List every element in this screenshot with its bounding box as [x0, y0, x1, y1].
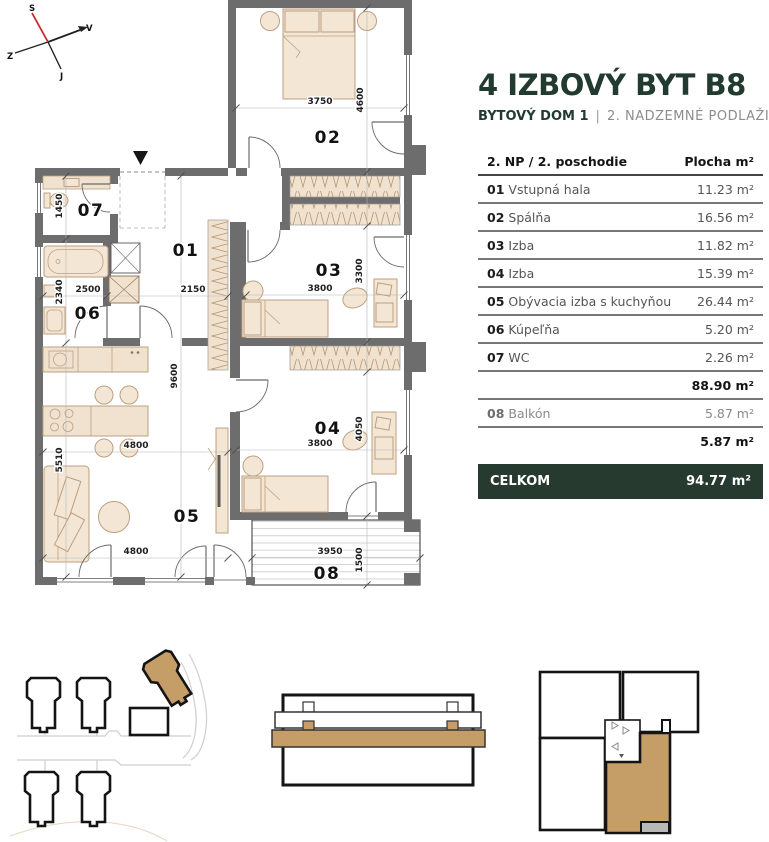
site-buildings	[25, 649, 198, 826]
compass-label-south: J	[59, 72, 63, 82]
table-header-right: Plocha m²	[684, 154, 754, 169]
room-label-03: 03	[316, 261, 343, 281]
area-table: 2. NP / 2. poschodie Plocha m² 01 Vstupn…	[478, 148, 763, 499]
table-row: 05 Obývacia izba s kuchyňou 26.44 m²	[478, 288, 763, 316]
room-area: 2.26 m²	[705, 350, 754, 365]
total-value: 94.77 m²	[686, 474, 751, 489]
room-area: 16.56 m²	[697, 210, 754, 225]
room-name: Spálňa	[508, 210, 551, 225]
room-number: 02	[487, 210, 504, 225]
dim-label-2500: 2500	[75, 285, 100, 295]
floor-plan-sheet: S V Z J	[0, 0, 769, 842]
dim-label-3300: 3300	[355, 258, 365, 283]
dim-label-4050: 4050	[355, 416, 365, 441]
room-name: Izba	[508, 266, 534, 281]
table-row: 03 Izba 11.82 m²	[478, 232, 763, 260]
room-number: 06	[487, 322, 504, 337]
total-label: CELKOM	[490, 474, 550, 489]
dim-label-1450: 1450	[55, 193, 65, 218]
table-header-left: 2. NP / 2. poschodie	[487, 154, 627, 169]
floor-key-plan	[533, 650, 708, 840]
room-number: 05	[487, 294, 504, 309]
room-name: Kúpeľňa	[508, 322, 559, 337]
room-area: 11.82 m²	[697, 238, 754, 253]
room-number: 04	[487, 266, 504, 281]
room-label-08: 08	[314, 564, 341, 584]
room-area: 5.20 m²	[705, 322, 754, 337]
room-02-bedroom-furniture	[261, 9, 377, 99]
subtitle: BYTOVÝ DOM 1 | 2. NADZEMNÉ PODLAŽIE	[478, 109, 763, 124]
dim-label-4600: 4600	[356, 87, 366, 112]
site-plan	[5, 640, 235, 842]
subtitle-separator: |	[596, 109, 600, 124]
dim-label-4800b: 4800	[123, 547, 148, 557]
table-row: 06 Kúpeľňa 5.20 m²	[478, 316, 763, 344]
compass-label-north: S	[29, 4, 35, 14]
dim-label-1500: 1500	[355, 547, 365, 572]
dim-label-2340: 2340	[55, 279, 65, 304]
dim-label-9600: 9600	[170, 363, 180, 388]
room-label-01: 01	[173, 241, 200, 261]
room-label-06: 06	[75, 304, 102, 324]
room-name: Obývacia izba s kuchyňou	[508, 294, 671, 309]
floor-plan-drawing: S V Z J	[0, 0, 440, 612]
room-area: 5.87 m²	[705, 406, 754, 421]
dim-label-3800a: 3800	[307, 284, 332, 294]
building-section	[262, 675, 497, 805]
key-balcony	[641, 822, 669, 833]
table-row: 01 Vstupná hala 11.23 m²	[478, 176, 763, 204]
room-label-07: 07	[78, 201, 105, 221]
dim-label-3950: 3950	[317, 547, 342, 557]
room-number: 07	[487, 350, 504, 365]
compass-label-east: V	[86, 24, 93, 34]
room-label-02: 02	[315, 128, 342, 148]
compass-north-arrow: S V Z J	[7, 4, 93, 82]
dim-label-4800a: 4800	[123, 441, 148, 451]
room-area: 26.44 m²	[697, 294, 754, 309]
interior-subtotal-row: 88.90 m²	[478, 372, 763, 400]
page-title: 4 IZBOVÝ BYT B8	[478, 68, 763, 102]
room-number: 08	[487, 406, 504, 421]
compass-label-west: Z	[7, 52, 13, 62]
balcony-subtotal-value: 5.87 m²	[700, 434, 754, 449]
table-row: 02 Spálňa 16.56 m²	[478, 204, 763, 232]
section-highlighted-floor	[272, 730, 485, 747]
room-name: Vstupná hala	[508, 182, 590, 197]
room-name: Izba	[508, 238, 534, 253]
room-label-05: 05	[174, 507, 201, 527]
room-number: 01	[487, 182, 504, 197]
dim-label-3750: 3750	[307, 97, 332, 107]
table-header-row: 2. NP / 2. poschodie Plocha m²	[478, 148, 763, 176]
info-panel: 4 IZBOVÝ BYT B8 BYTOVÝ DOM 1 | 2. NADZEM…	[478, 58, 763, 499]
dim-label-3800b: 3800	[307, 439, 332, 449]
room-name: Balkón	[508, 406, 550, 421]
table-row: 07 WC 2.26 m²	[478, 344, 763, 372]
interior-subtotal-value: 88.90 m²	[692, 378, 754, 393]
utility-shafts	[109, 243, 140, 303]
total-banner: CELKOM 94.77 m²	[478, 464, 763, 499]
dim-label-2150: 2150	[180, 285, 205, 295]
building-label: BYTOVÝ DOM 1	[478, 109, 589, 124]
room-area: 15.39 m²	[697, 266, 754, 281]
balcony-row: 08 Balkón 5.87 m²	[478, 400, 763, 428]
room-name: WC	[508, 350, 529, 365]
balcony-subtotal-row: 5.87 m²	[478, 428, 763, 454]
room-label-04: 04	[315, 419, 342, 439]
entry-arrow-icon	[120, 151, 165, 228]
room-number: 03	[487, 238, 504, 253]
room-area: 11.23 m²	[697, 182, 754, 197]
dim-label-5510: 5510	[55, 447, 65, 472]
table-row: 04 Izba 15.39 m²	[478, 260, 763, 288]
room-05-living-kitchen-furniture	[43, 347, 228, 562]
floor-label: 2. NADZEMNÉ PODLAŽIE	[607, 109, 769, 124]
